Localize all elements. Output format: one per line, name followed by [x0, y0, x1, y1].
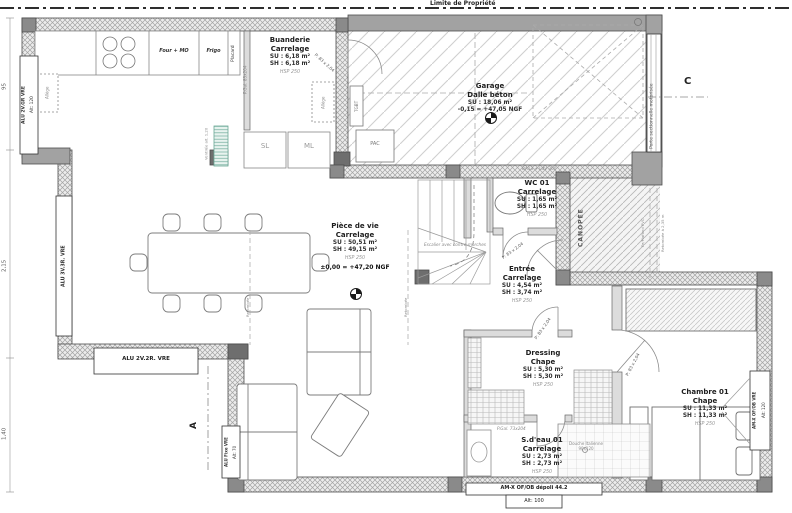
room-hsp: HSP 250 — [240, 70, 340, 75]
floor-plan: Limite de Propriété Buanderie Carrelage … — [0, 0, 792, 513]
shower-label: Douche Italienne 90x120 — [562, 442, 610, 452]
room-finish: Dalle béton — [425, 91, 555, 100]
window-label-left: ALU 3V.3R. VRE — [58, 200, 70, 332]
room-hsp: HSP 250 — [300, 256, 410, 261]
vent-shaft — [214, 126, 228, 166]
window-label-bottom-left: ALU 2V.2R. VRE — [96, 356, 196, 362]
armchair — [310, 393, 370, 458]
room-name: Buanderie — [240, 36, 340, 45]
door-label-sdeau: P.Gal. 73x204 — [497, 426, 555, 431]
retombee-235-label: Retombée à 2,35 m — [658, 188, 667, 278]
pac-label: PAC — [356, 141, 394, 147]
room-label-dressing: Dressing Chape SU : 5,30 m² SH : 5,30 m²… — [500, 349, 586, 388]
window-alt-chambre: Alt: 120 — [759, 373, 768, 448]
bedroom-closet — [626, 289, 756, 331]
dimension-top: 95 — [0, 74, 9, 100]
section-marker-a: A — [188, 416, 200, 436]
room-sh: SH : 5,30 m² — [500, 374, 586, 382]
sl-label: SL — [244, 142, 286, 150]
cooktop-icon — [103, 37, 117, 51]
room-level: ±0,00 = +47,20 NGF — [300, 264, 410, 271]
room-hsp: HSP 250 — [486, 299, 558, 304]
room-name: WC 01 — [500, 179, 574, 188]
room-su: SU : 50,51 m² — [300, 240, 410, 248]
fridge-label: Frigo — [199, 48, 228, 54]
stairs-label: Escalier avec contre-marches — [422, 242, 488, 247]
vanity — [467, 430, 491, 476]
room-name: Garage — [425, 82, 555, 91]
room-finish: Chape — [500, 358, 586, 367]
room-label-buanderie: Buanderie Carrelage SU : 6,18 m² SH : 6,… — [240, 36, 340, 75]
room-finish: Carrelage — [500, 188, 574, 197]
tgbt-label: TGBT — [351, 88, 362, 124]
level-benchmark-icon — [350, 288, 362, 300]
canopee-label: CANOPÉE — [574, 182, 588, 274]
room-su: SU : 4,54 m² — [486, 283, 558, 291]
allege-label: Allège — [42, 80, 52, 106]
room-name: Entrée — [486, 265, 558, 274]
allege-label: Allège — [318, 90, 328, 116]
room-sh: SH : 49,15 m² — [300, 247, 410, 255]
vent-label: Ventilée alt. 1,20 — [201, 118, 211, 170]
room-su: SU : 11,33 m² — [649, 406, 761, 414]
room-label-chambre01: Chambre 01 Chape SU : 11,33 m² SH : 11,3… — [649, 388, 761, 427]
room-label-piece-de-vie: Pièce de vie Carrelage SU : 50,51 m² SH … — [300, 222, 410, 271]
room-hsp: HSP 250 — [649, 422, 761, 427]
window-alt-fixed: Alt: 70 — [230, 427, 239, 477]
section-marker-c: C — [684, 76, 691, 88]
kitchen-door-label: P.Gal. 83x204 — [240, 56, 250, 104]
room-name: Dressing — [500, 349, 586, 358]
room-su: SU : 1,65 m² — [500, 197, 574, 205]
room-finish: Carrelage — [240, 45, 340, 54]
placard-label: Placard — [227, 34, 240, 74]
room-name: Chambre 01 — [649, 388, 761, 397]
oven-label: Four + MO — [149, 48, 199, 54]
room-label-wc01: WC 01 Carrelage SU : 1,65 m² SH : 1,65 m… — [500, 179, 574, 218]
room-su: SU : 5,30 m² — [500, 367, 586, 375]
retombee-label: Retombée — [243, 286, 252, 328]
window-alt-top-left: Alt: 120 — [28, 58, 37, 152]
window-label-chambre: AM-X OF/OB VRE — [749, 373, 759, 448]
retombee-label: Retombée — [401, 286, 410, 328]
room-finish: Carrelage — [300, 231, 410, 240]
room-finish: Carrelage — [486, 274, 558, 283]
room-label-entree: Entrée Carrelage SU : 4,54 m² SH : 3,74 … — [486, 265, 558, 304]
room-sh: SH : 1,65 m² — [500, 204, 574, 212]
room-hsp: HSP 250 — [500, 213, 574, 218]
window-label-sdeau: AM-X OF/OB dépoli 44.2 — [468, 485, 600, 491]
room-sh: SH : 11,33 m² — [649, 413, 761, 421]
room-hsp: HSP 250 — [500, 470, 584, 475]
pillow — [736, 447, 752, 475]
ba13-label: BA13 + LdV 300 — [522, 166, 612, 171]
dimension-bottom: 1,40 — [0, 418, 9, 450]
level-benchmark-icon — [485, 112, 497, 124]
room-label-garage: Garage Dalle béton SU : 18,06 m² -0,15 =… — [425, 82, 555, 115]
room-finish: Chape — [649, 397, 761, 406]
room-sh: SH : 2,73 m² — [500, 461, 584, 469]
room-sh: SH : 3,74 m² — [486, 290, 558, 298]
room-su: SU : 18,06 m² — [425, 100, 555, 108]
fe-plafond-label: Fe/Plafond PVC — [638, 190, 647, 275]
room-name: Pièce de vie — [300, 222, 410, 231]
garage-door-label: Porte sectionnelle motorisée — [646, 55, 658, 177]
nightstand — [630, 407, 648, 425]
window-alt-sdeau: Alt: 100 — [508, 498, 560, 504]
room-su: SU : 2,73 m² — [500, 454, 584, 462]
room-hsp: HSP 250 — [500, 383, 586, 388]
ml-label: ML — [288, 142, 330, 150]
stairs — [418, 180, 490, 284]
property-limit-label: Limite de Propriété — [430, 0, 495, 7]
dimension-middle: 2,15 — [0, 250, 9, 282]
sofa-group — [237, 309, 371, 480]
